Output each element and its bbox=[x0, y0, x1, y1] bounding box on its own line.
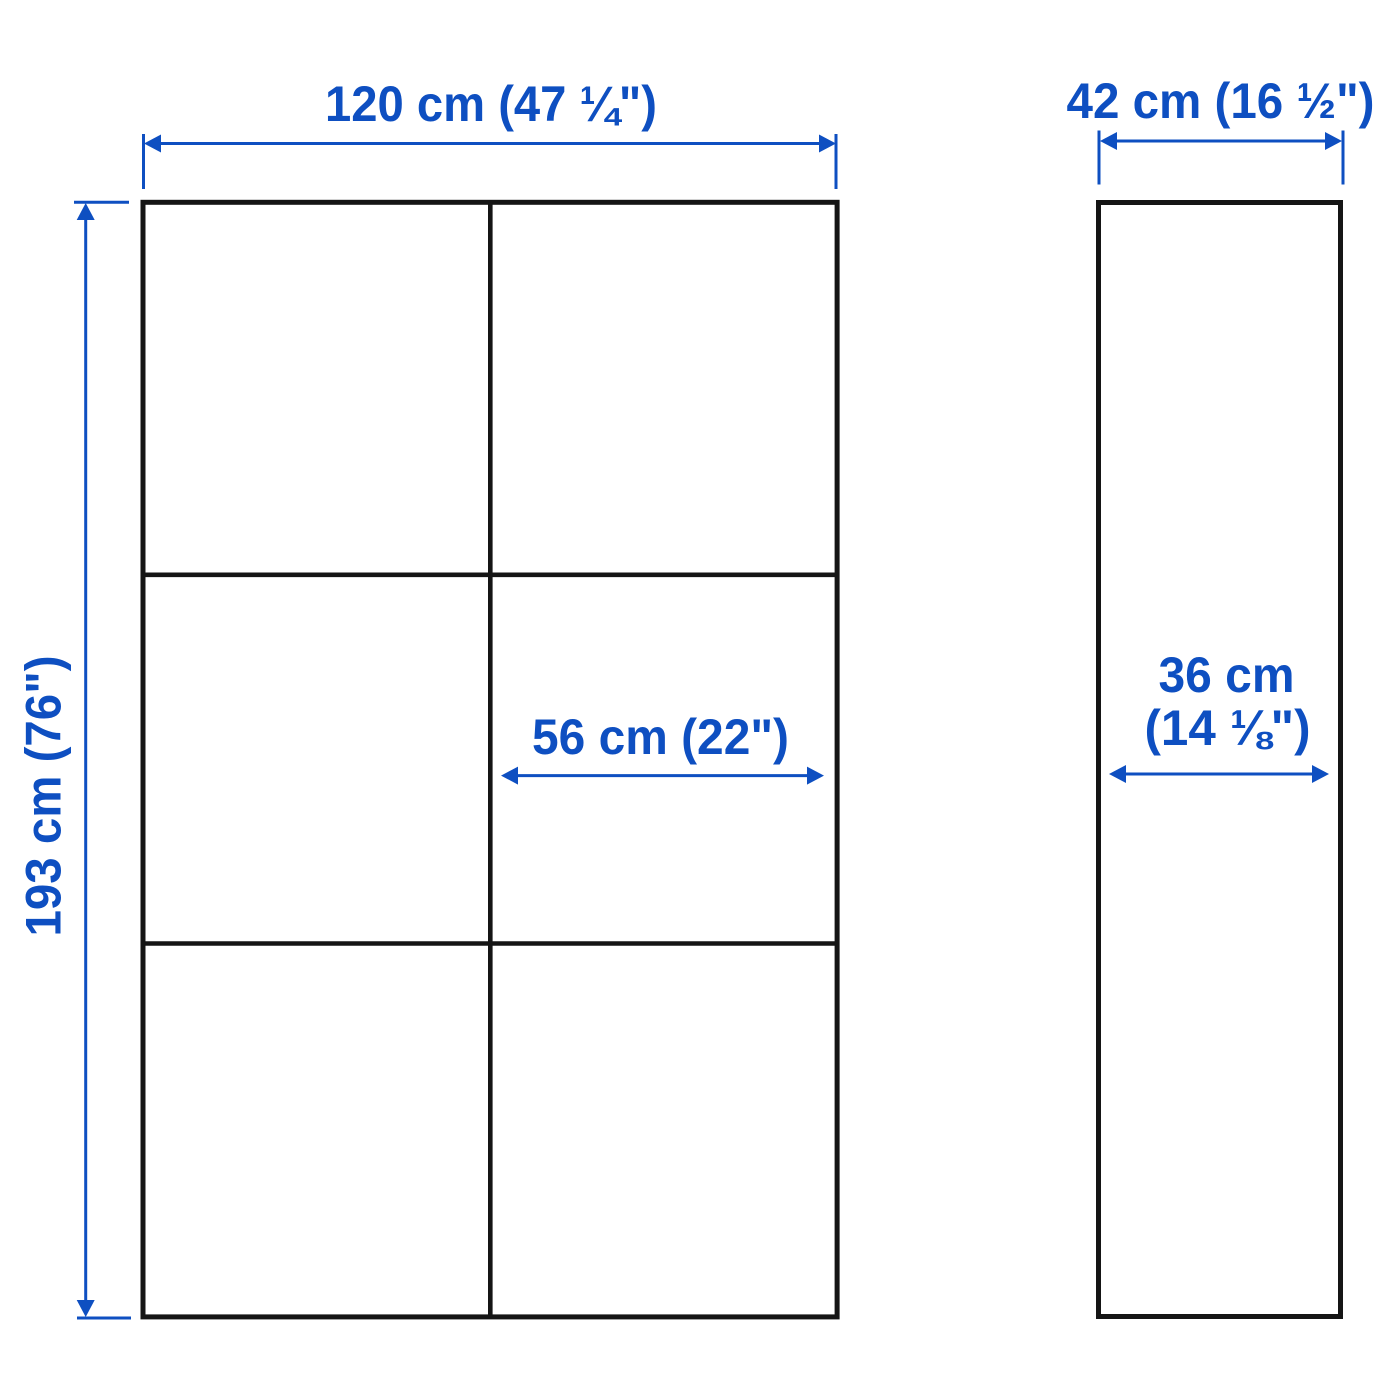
svg-text:120 cm (47 ¼"): 120 cm (47 ¼") bbox=[325, 76, 657, 132]
svg-text:36 cm: 36 cm bbox=[1159, 647, 1295, 703]
svg-text:(14 ⅛"): (14 ⅛") bbox=[1145, 700, 1311, 756]
svg-text:193 cm (76"): 193 cm (76") bbox=[16, 656, 72, 937]
svg-text:42 cm (16 ½"): 42 cm (16 ½") bbox=[1067, 73, 1375, 129]
svg-text:56 cm (22"): 56 cm (22") bbox=[532, 709, 789, 765]
